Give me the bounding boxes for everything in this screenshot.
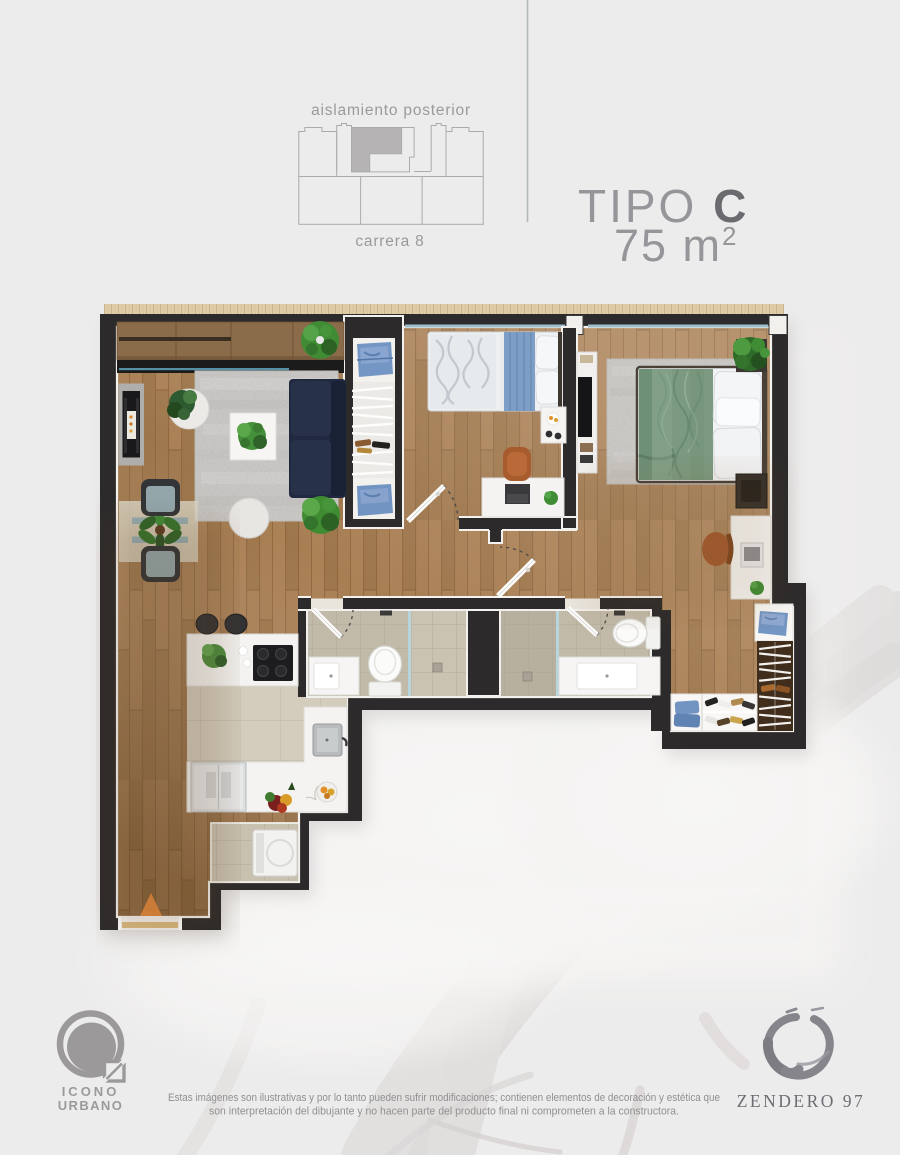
svg-text:son interpretación del dibujan: son interpretación del dibujante y no ha… [209, 1106, 679, 1118]
svg-text:Estas imágenes son ilustrativa: Estas imágenes son ilustrativas y por lo… [168, 1092, 720, 1104]
svg-text:ZENDERO 97: ZENDERO 97 [737, 1091, 866, 1111]
svg-text:ICONO: ICONO [62, 1084, 120, 1099]
svg-text:aislamiento posterior: aislamiento posterior [311, 102, 471, 119]
svg-text:carrera 8: carrera 8 [355, 233, 424, 250]
svg-text:75 m2: 75 m2 [614, 220, 739, 271]
svg-text:URBANO: URBANO [58, 1098, 123, 1113]
